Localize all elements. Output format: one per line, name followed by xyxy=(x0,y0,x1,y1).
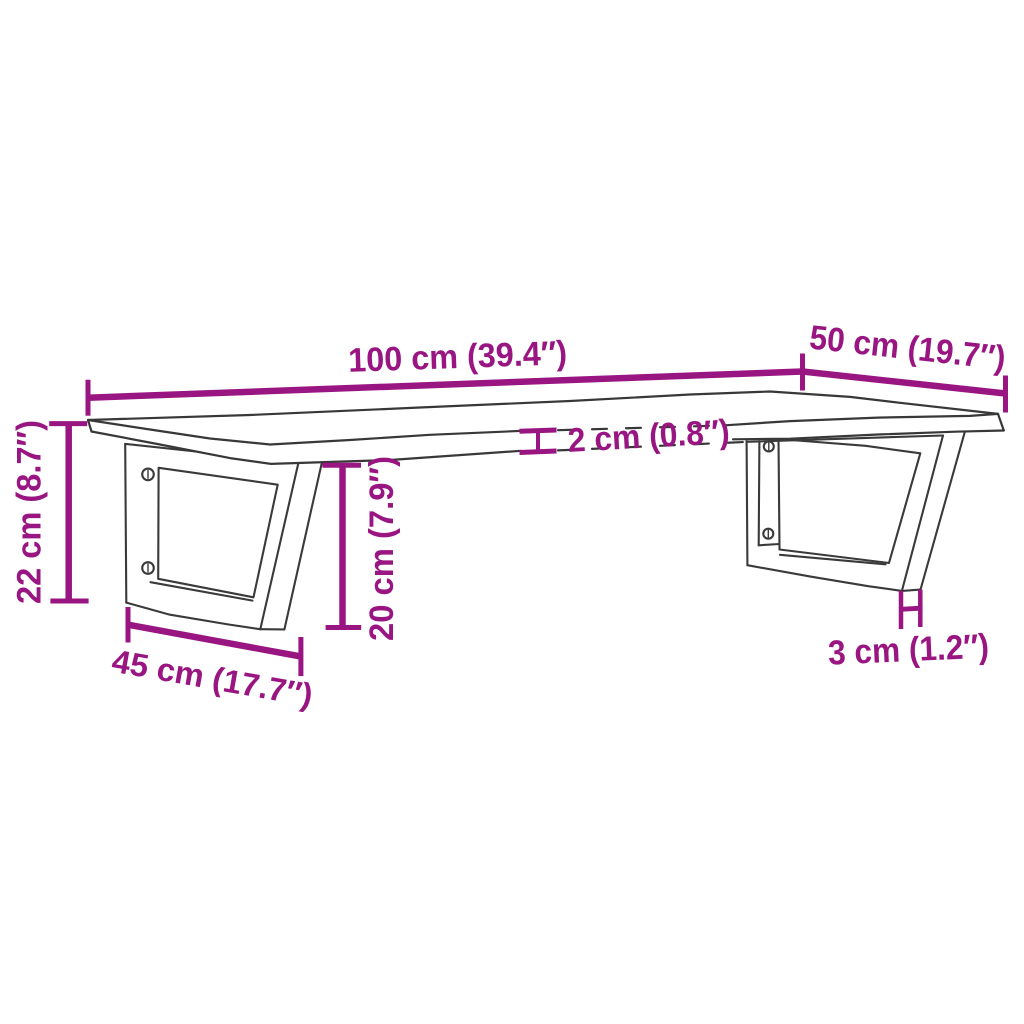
svg-text:100 cm (39.4″): 100 cm (39.4″) xyxy=(348,334,568,380)
svg-text:3 cm (1.2″): 3 cm (1.2″) xyxy=(827,628,990,673)
svg-text:22 cm (8.7″): 22 cm (8.7″) xyxy=(10,420,48,604)
svg-text:20 cm (7.9″): 20 cm (7.9″) xyxy=(363,456,401,641)
